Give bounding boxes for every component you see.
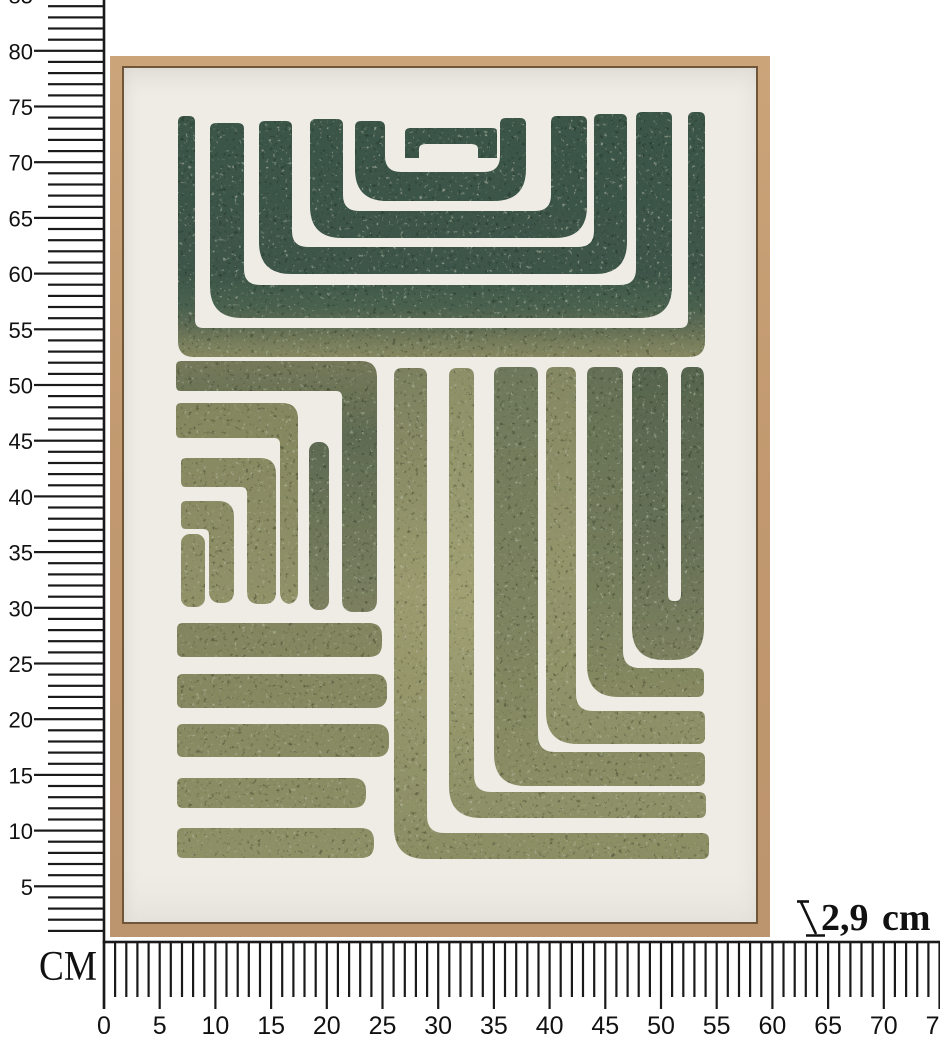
svg-text:CM: CM <box>39 944 97 990</box>
svg-text:20: 20 <box>313 1012 341 1038</box>
svg-text:25: 25 <box>369 1012 397 1038</box>
svg-text:5: 5 <box>153 1012 167 1038</box>
svg-text:15: 15 <box>257 1012 285 1038</box>
svg-text:2,9 cm: 2,9 cm <box>821 897 931 939</box>
svg-text:25: 25 <box>9 652 33 677</box>
svg-text:10: 10 <box>9 819 33 844</box>
svg-text:65: 65 <box>814 1012 842 1038</box>
svg-text:60: 60 <box>758 1012 786 1038</box>
svg-text:80: 80 <box>9 39 33 64</box>
svg-text:20: 20 <box>9 708 33 733</box>
svg-text:70: 70 <box>870 1012 898 1038</box>
svg-text:85: 85 <box>9 0 33 9</box>
svg-text:70: 70 <box>9 151 33 176</box>
svg-text:15: 15 <box>9 763 33 788</box>
svg-text:50: 50 <box>9 374 33 399</box>
svg-text:30: 30 <box>424 1012 452 1038</box>
svg-text:0: 0 <box>97 1012 111 1038</box>
svg-text:10: 10 <box>201 1012 229 1038</box>
svg-text:35: 35 <box>9 541 33 566</box>
svg-text:40: 40 <box>9 485 33 510</box>
svg-text:30: 30 <box>9 596 33 621</box>
svg-text:45: 45 <box>591 1012 619 1038</box>
svg-text:40: 40 <box>536 1012 564 1038</box>
svg-text:55: 55 <box>703 1012 731 1038</box>
svg-text:45: 45 <box>9 429 33 454</box>
svg-text:5: 5 <box>21 875 33 900</box>
svg-text:55: 55 <box>9 318 33 343</box>
svg-text:65: 65 <box>9 206 33 231</box>
svg-text:75: 75 <box>9 95 33 120</box>
svg-text:75: 75 <box>926 1012 940 1038</box>
svg-text:35: 35 <box>480 1012 508 1038</box>
svg-text:50: 50 <box>647 1012 675 1038</box>
svg-text:60: 60 <box>9 262 33 287</box>
